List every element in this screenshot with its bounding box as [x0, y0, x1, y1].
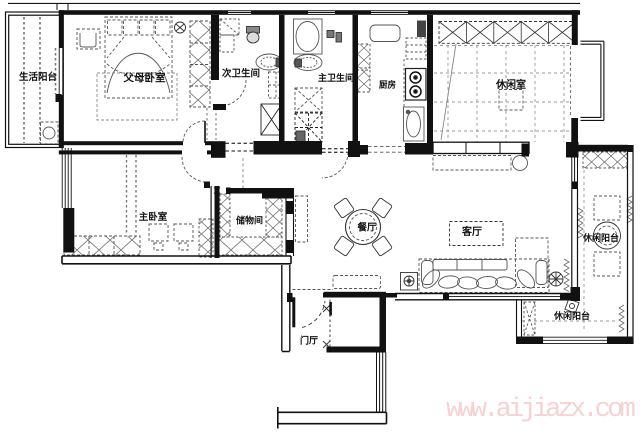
svg-text:主卫生间: 主卫生间	[318, 72, 354, 83]
svg-text:休闲阳台: 休闲阳台	[553, 310, 590, 321]
svg-text:储物间: 储物间	[236, 215, 263, 226]
svg-text:父母卧室: 父母卧室	[123, 71, 166, 84]
svg-text:厨房: 厨房	[379, 80, 396, 90]
svg-text:生活阳台: 生活阳台	[19, 71, 58, 83]
svg-text:主卧室: 主卧室	[139, 211, 168, 223]
svg-text:客厅: 客厅	[461, 225, 482, 238]
svg-text:休闲室: 休闲室	[495, 78, 526, 91]
svg-text:次卫生间: 次卫生间	[222, 68, 260, 80]
svg-text:餐厅: 餐厅	[356, 222, 377, 234]
svg-text:休闲阳台: 休闲阳台	[582, 232, 619, 243]
svg-text:门厅: 门厅	[300, 335, 318, 346]
svg-text:www.aijiazx.com: www.aijiazx.com	[446, 395, 635, 425]
